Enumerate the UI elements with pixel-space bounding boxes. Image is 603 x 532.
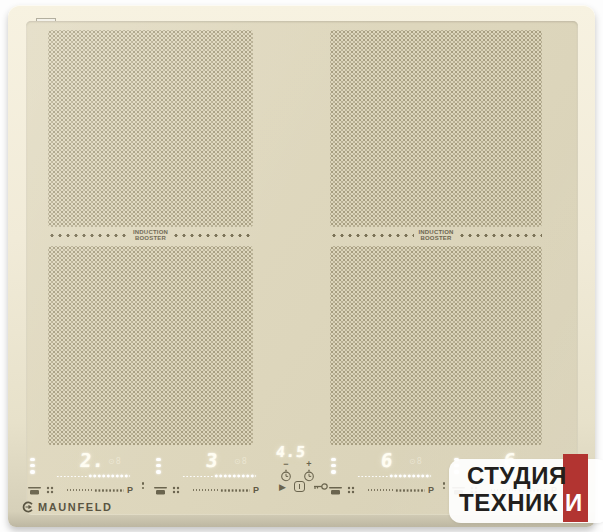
zone3-controls: 6 ⊙8 P <box>329 450 459 498</box>
watermark-accent-letter: И <box>565 489 582 517</box>
power-boost-label: P <box>428 485 434 495</box>
slider-track <box>66 488 94 492</box>
power-on-off-icon <box>294 481 305 492</box>
key-lock-icon <box>313 482 328 491</box>
zone1-secondary-indicator: ⊙8 <box>108 457 122 466</box>
minus-sign: − <box>283 461 288 468</box>
pan-detect-icon <box>28 486 41 495</box>
power-boost-label: P <box>253 485 259 495</box>
power-boost-label: P <box>127 485 133 495</box>
slider-track <box>220 488 250 493</box>
watermark-line1: СТУДИЯ <box>467 462 567 490</box>
zone3-power-display: 6 <box>380 449 395 471</box>
slider-track <box>192 488 220 492</box>
zone-select-dots-icon <box>30 458 35 474</box>
brand-name: MAUNFELD <box>38 501 113 513</box>
induction-booster-label: INDUCTION BOOSTER <box>133 229 168 242</box>
product-photo-induction-hob: INDUCTION BOOSTER INDUCTION BOOSTER 2. ⊙… <box>0 0 603 532</box>
dots-line <box>172 233 253 238</box>
master-printed-icons: ▶ <box>279 481 328 492</box>
cooking-zone-rear-left <box>48 30 253 227</box>
zone-select-dots-icon <box>331 458 336 474</box>
zone3-level-dots <box>357 473 431 479</box>
timer-display: 4.5 <box>275 444 307 460</box>
dots-line <box>330 233 414 238</box>
pan-detect-icon <box>329 486 342 495</box>
zone1-controls: 2. ⊙8 P <box>28 450 158 498</box>
zone-divider-dots-icon <box>142 482 144 489</box>
zone2-printed-row: P <box>154 484 259 496</box>
play-pause-icon: ▶ <box>279 482 286 492</box>
zone2-secondary-indicator: ⊙8 <box>234 457 248 466</box>
booster-label-line2: BOOSTER <box>135 235 166 242</box>
cooking-zone-rear-right <box>330 30 542 227</box>
timer-plus-control: + <box>301 461 317 482</box>
watermark-line2: ТЕХНИК <box>459 489 558 517</box>
bridge-zones-icon <box>46 486 54 494</box>
zone2-level-dots <box>182 473 256 479</box>
slider-track <box>94 488 124 493</box>
zone-divider-dots-icon <box>443 482 445 489</box>
booster-label-line2: BOOSTER <box>420 235 451 242</box>
zone1-power-display: 2. <box>79 449 106 471</box>
pan-detect-icon <box>154 486 167 495</box>
slider-track <box>395 488 425 493</box>
induction-booster-label: INDUCTION BOOSTER <box>418 229 453 242</box>
dots-line <box>48 233 129 238</box>
zone3-secondary-indicator: ⊙8 <box>409 457 423 466</box>
bridge-zones-icon <box>172 486 180 494</box>
cooking-zone-front-left <box>48 246 253 445</box>
plus-sign: + <box>306 461 311 468</box>
bridge-zones-icon <box>347 486 355 494</box>
booster-separator-left: INDUCTION BOOSTER <box>48 227 253 243</box>
slider-track <box>367 488 395 492</box>
maunfeld-logo-icon <box>22 501 34 513</box>
zone2-controls: 3 ⊙8 P <box>154 450 284 498</box>
booster-separator-right: INDUCTION BOOSTER <box>330 227 542 243</box>
brand-logo: MAUNFELD <box>22 501 113 513</box>
timer-minus-control: − <box>278 461 294 482</box>
zone1-level-dots <box>56 473 130 479</box>
zone-select-dots-icon <box>156 458 161 474</box>
zone1-printed-row: P <box>28 484 133 496</box>
dots-line <box>458 233 542 238</box>
zone2-power-display: 3 <box>205 449 220 471</box>
zone3-printed-row: P <box>329 484 434 496</box>
cooking-zone-front-right <box>330 246 542 445</box>
